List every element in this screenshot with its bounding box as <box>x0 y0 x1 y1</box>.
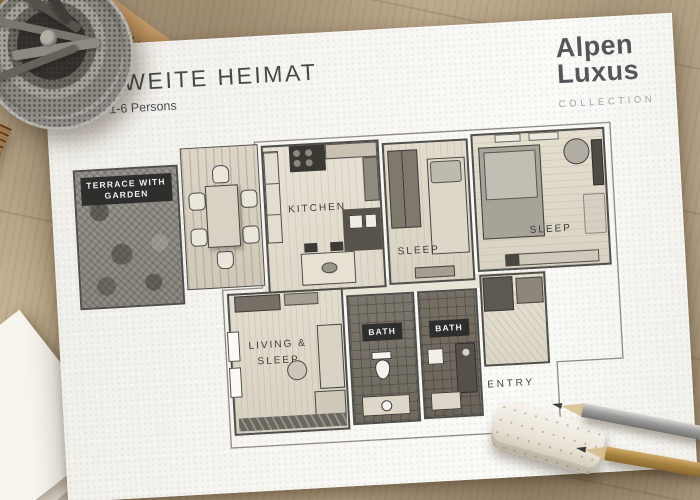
room-bath-right: BATH <box>417 288 484 419</box>
balcony-strip <box>239 413 348 432</box>
kitchen-cabinets <box>263 151 283 244</box>
dining-chair <box>216 251 234 270</box>
kitchen-island <box>342 207 382 251</box>
kitchen-table <box>301 251 357 286</box>
room-bath-left: BATH <box>346 292 421 426</box>
closet <box>234 294 281 313</box>
kitchen-chair <box>304 243 317 253</box>
shower <box>455 342 478 393</box>
shower-head <box>462 349 469 356</box>
brand-word-2: Luxus <box>556 56 654 87</box>
stove-burner <box>293 150 300 157</box>
pillow <box>430 160 462 184</box>
dining-chair <box>188 192 206 211</box>
bench <box>415 265 456 278</box>
dining-table <box>205 184 241 248</box>
dining-chair <box>190 228 208 247</box>
page-title: ZWEITE HEIMAT <box>106 59 318 98</box>
wooden-ruler-left <box>0 111 12 267</box>
room-terrace: TERRACE WITH GARDEN <box>73 165 186 311</box>
sofa-corner <box>314 390 346 416</box>
living-sleep-label: LIVING & SLEEP <box>237 335 319 371</box>
kitchen-counter <box>362 156 379 201</box>
stool <box>563 138 590 165</box>
brand-tagline: COLLECTION <box>558 87 656 118</box>
desk-photo-scene: ZWEITE HEIMAT 1-6 Persons Alpen Luxus CO… <box>0 0 700 500</box>
brand-logo: Alpen Luxus COLLECTION <box>555 30 656 118</box>
kitchen-chair <box>330 241 343 251</box>
stove <box>289 144 326 172</box>
pillow <box>483 150 538 201</box>
dresser <box>591 139 605 186</box>
kitchen-label: KITCHEN <box>288 201 346 215</box>
bath-left-label-badge: BATH <box>362 322 403 341</box>
rug <box>583 193 607 234</box>
sink <box>381 400 393 412</box>
dining-chair <box>212 165 230 184</box>
dining-chair <box>242 225 260 244</box>
room-entry-hall <box>479 271 550 367</box>
kitchen-appliance <box>365 214 378 229</box>
skylight <box>494 133 520 142</box>
terrace-label-badge: TERRACE WITH GARDEN <box>80 173 173 206</box>
room-sleep-right: SLEEP <box>470 127 611 272</box>
toilet-bowl <box>375 359 391 380</box>
bath-right-label-badge: BATH <box>429 319 470 338</box>
sleep-right-label: SLEEP <box>529 223 572 236</box>
room-living-sleep: LIVING & SLEEP <box>227 288 351 436</box>
bath-vanity <box>362 394 411 417</box>
terrace-label-line2: GARDEN <box>104 188 149 200</box>
stove-burner <box>293 160 300 167</box>
kitchen-sink <box>349 214 364 229</box>
sofa <box>317 324 346 389</box>
bench-end <box>505 254 520 267</box>
page-subtitle: 1-6 Persons <box>109 99 177 117</box>
shelf <box>284 292 319 306</box>
room-deck <box>180 144 266 290</box>
bed <box>427 157 470 255</box>
wardrobe <box>387 149 421 229</box>
stove-burner <box>305 149 312 156</box>
room-kitchen: KITCHEN <box>261 139 387 293</box>
sleep-middle-label: SLEEP <box>397 244 440 257</box>
sharpener-in-cup <box>40 30 57 47</box>
washer <box>427 348 444 365</box>
dining-chair <box>240 189 258 208</box>
bath-vanity <box>431 391 462 411</box>
skylight <box>528 131 558 141</box>
window <box>229 367 243 398</box>
entry-wardrobe <box>482 276 514 312</box>
stove-burner <box>305 159 312 166</box>
room-sleep-middle: SLEEP <box>382 138 476 285</box>
entry-cabinet <box>515 276 543 303</box>
plant-on-table <box>321 262 338 274</box>
